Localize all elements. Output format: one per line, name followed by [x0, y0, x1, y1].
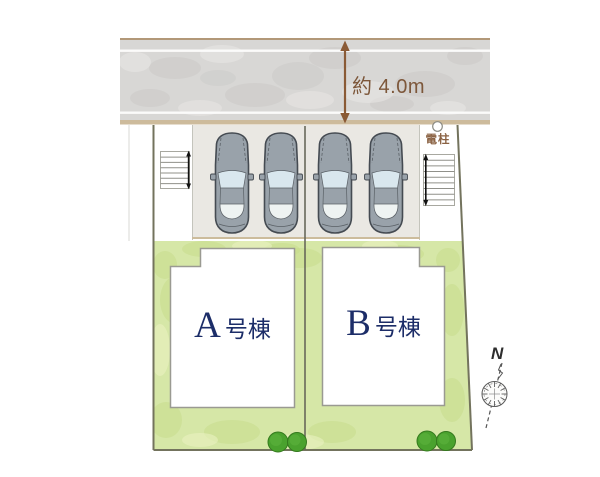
stairs-right-icon [423, 154, 454, 206]
bush-icon [288, 433, 307, 452]
building-b-suffix: 号棟 [375, 310, 421, 346]
utility-pole-icon [433, 122, 443, 132]
building-b-letter: B [346, 306, 372, 342]
building-a-suffix: 号棟 [225, 312, 271, 348]
utility-pole-label: 電柱 [422, 131, 454, 147]
compass-north-label: N [491, 344, 503, 364]
stairs-left-icon [161, 151, 192, 189]
site-plan: 約 4.0m 電柱 A 号棟 B 号棟 N [0, 0, 600, 477]
bush-icon [417, 431, 437, 451]
car-icon [314, 133, 357, 233]
site-plan-graphic [0, 0, 600, 477]
car-icon [260, 133, 303, 233]
car-icon [365, 133, 408, 233]
building-b-label: B 号棟 [322, 306, 445, 342]
road-width-label: 約 4.0m [352, 70, 425, 99]
road-surface [119, 38, 490, 125]
bush-icon [268, 432, 288, 452]
car-icon [211, 133, 254, 233]
building-a-label: A 号棟 [170, 308, 295, 344]
building-a-letter: A [194, 308, 222, 344]
bush-icon [437, 432, 456, 451]
compass-icon [482, 363, 507, 428]
